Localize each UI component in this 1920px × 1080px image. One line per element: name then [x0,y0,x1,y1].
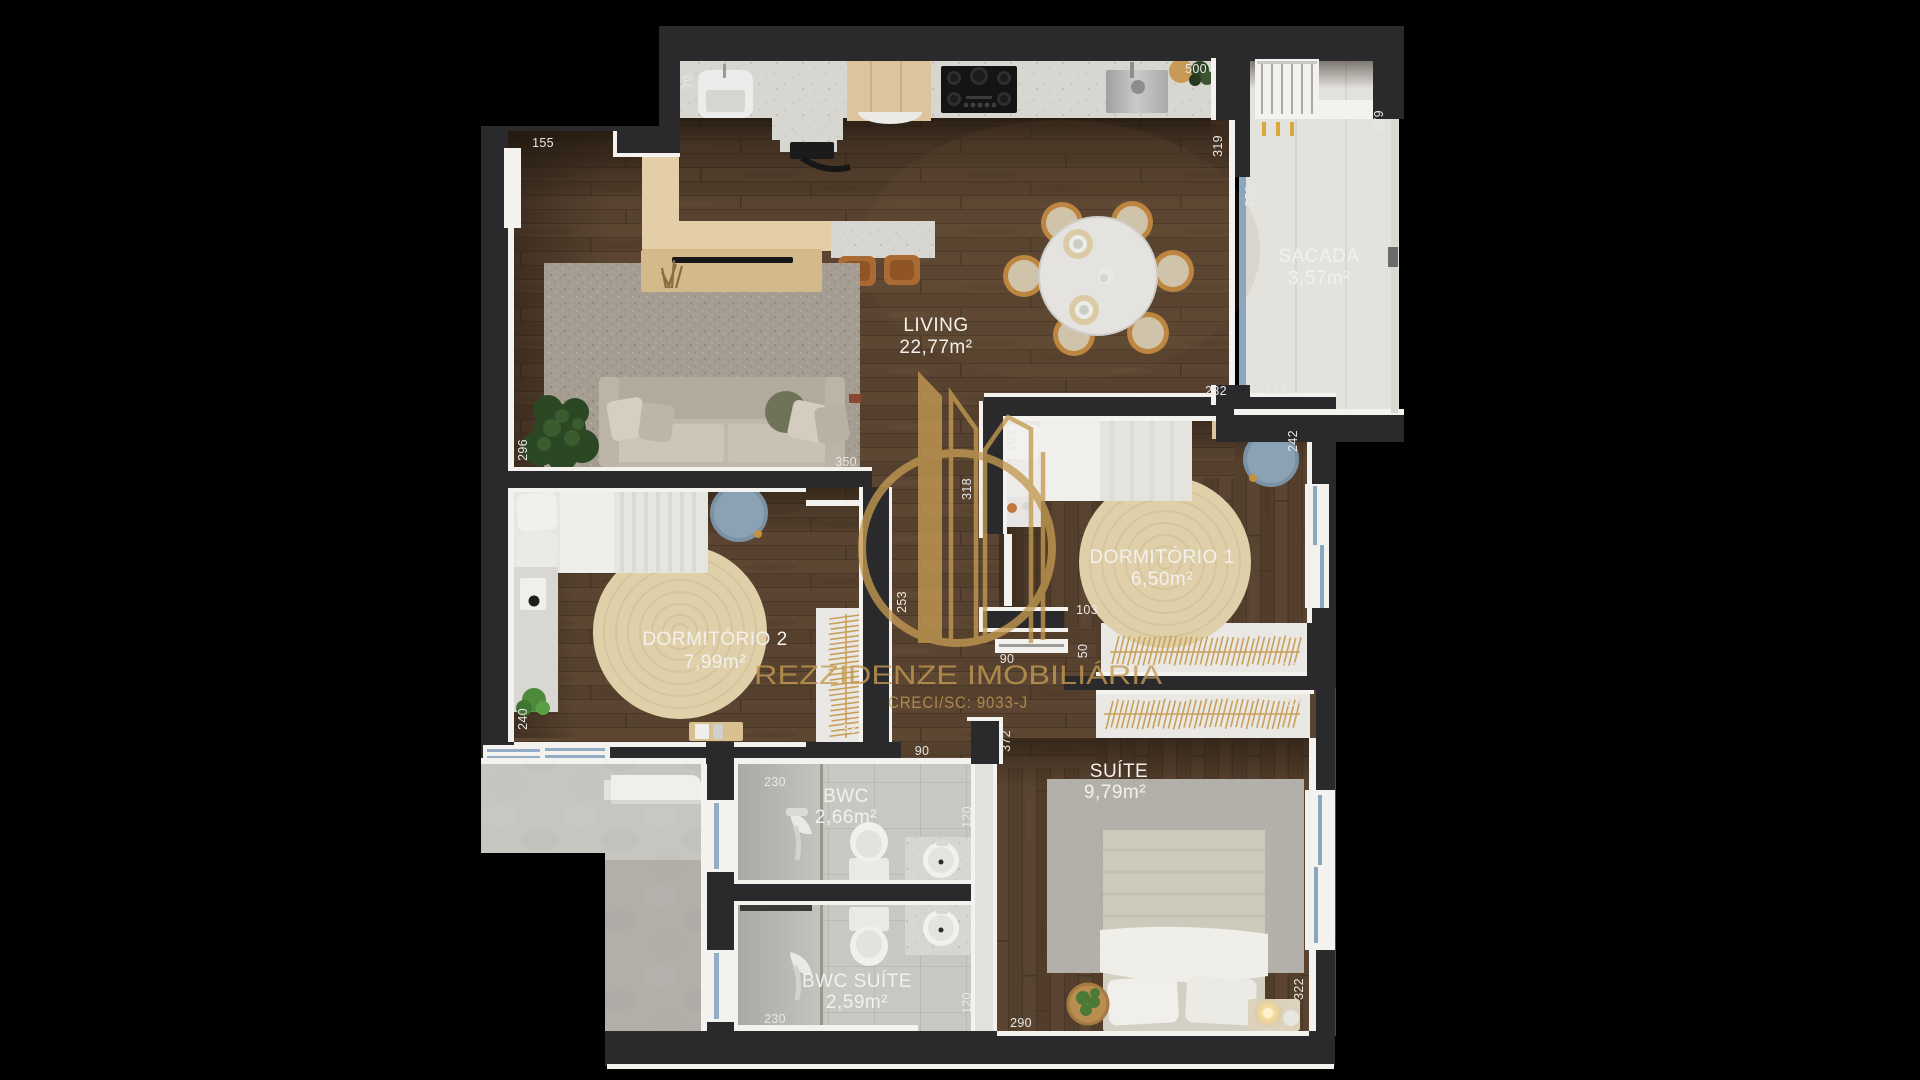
svg-text:22,77m²: 22,77m² [899,337,972,358]
svg-text:232: 232 [1205,384,1227,398]
svg-text:SACADA: SACADA [1278,246,1359,267]
svg-text:DORMITÓRIO 1: DORMITÓRIO 1 [1089,546,1234,568]
svg-text:120: 120 [960,992,974,1014]
svg-text:SUÍTE: SUÍTE [1090,761,1148,782]
svg-text:155: 155 [532,136,554,150]
svg-text:322: 322 [1292,978,1306,1000]
svg-text:90: 90 [915,744,930,758]
svg-text:50: 50 [1076,644,1090,659]
svg-text:253: 253 [895,591,909,613]
svg-text:REZZIDENZE IMOBILIÁRIA: REZZIDENZE IMOBILIÁRIA [754,660,1162,690]
svg-text:113: 113 [1266,384,1287,398]
svg-text:230: 230 [764,1012,786,1026]
svg-text:259: 259 [1243,185,1257,207]
svg-text:290: 290 [1010,1016,1032,1030]
svg-text:230: 230 [764,775,786,789]
svg-text:296: 296 [516,439,530,461]
svg-text:500: 500 [1185,62,1207,76]
svg-text:9,79m²: 9,79m² [1084,782,1146,803]
svg-text:318: 318 [960,478,974,500]
svg-text:2,59m²: 2,59m² [826,992,888,1013]
svg-text:BWC SUÍTE: BWC SUÍTE [802,971,912,992]
svg-text:372: 372 [999,730,1013,752]
svg-text:BWC: BWC [823,786,869,807]
svg-text:200: 200 [1284,695,1306,709]
svg-text:6,50m²: 6,50m² [1131,569,1193,590]
svg-text:319: 319 [1211,135,1225,157]
svg-text:103: 103 [1076,603,1098,617]
svg-text:192: 192 [1005,430,1019,452]
svg-text:120: 120 [960,806,974,828]
svg-text:LIVING: LIVING [903,315,968,336]
svg-text:279: 279 [1372,110,1386,132]
svg-text:DORMITÓRIO 2: DORMITÓRIO 2 [642,628,787,650]
svg-text:187: 187 [1282,660,1304,674]
svg-text:3,57m²: 3,57m² [1288,268,1350,289]
svg-text:350: 350 [835,455,857,469]
svg-text:2,66m²: 2,66m² [815,807,877,828]
svg-text:CRECI/SC: 9033-J: CRECI/SC: 9033-J [888,693,1028,712]
svg-text:7,99m²: 7,99m² [684,652,746,673]
svg-text:79: 79 [681,75,695,90]
svg-text:240: 240 [516,708,530,730]
svg-text:337: 337 [842,722,864,736]
svg-text:242: 242 [1286,430,1300,452]
